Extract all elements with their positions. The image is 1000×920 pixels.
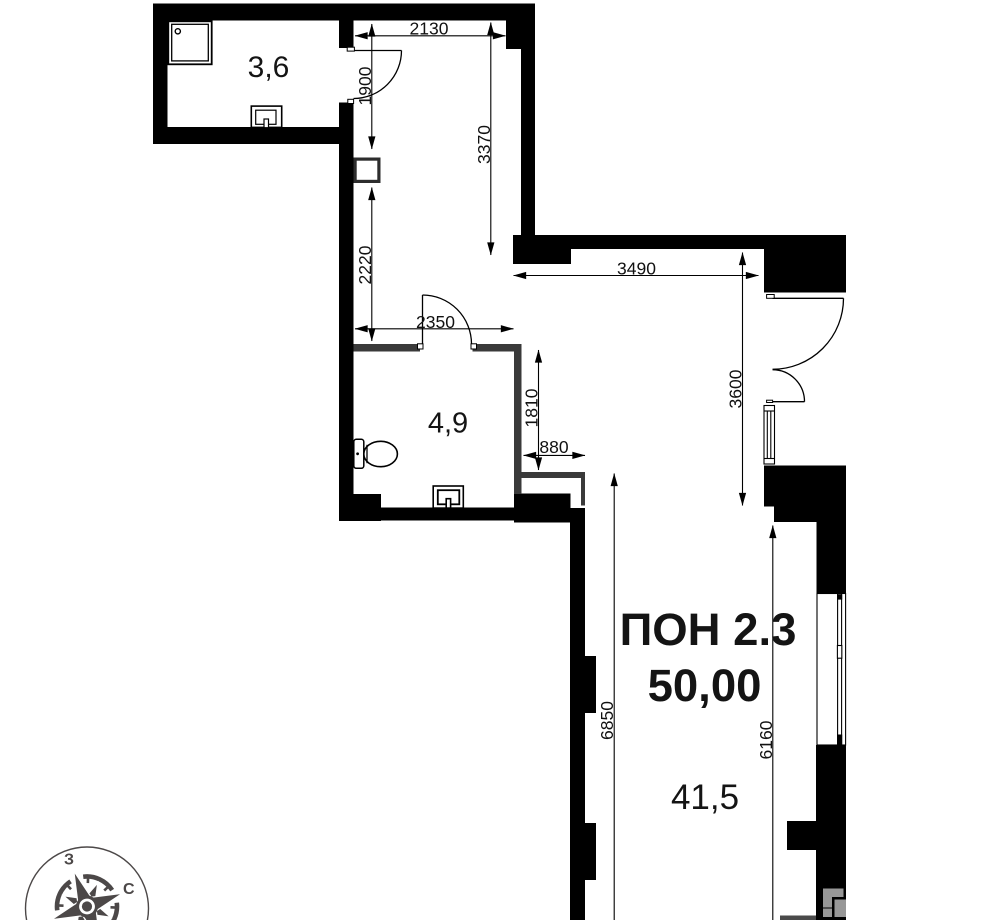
svg-text:3600: 3600 [726, 369, 746, 408]
svg-text:2220: 2220 [355, 245, 375, 284]
svg-text:6160: 6160 [756, 720, 776, 759]
svg-text:1810: 1810 [522, 388, 542, 427]
svg-text:З: З [64, 852, 74, 869]
svg-text:880: 880 [539, 437, 568, 457]
svg-text:1900: 1900 [355, 66, 375, 105]
svg-text:2350: 2350 [416, 312, 455, 332]
svg-text:3370: 3370 [474, 125, 494, 164]
svg-text:2130: 2130 [410, 19, 449, 39]
svg-text:6850: 6850 [597, 701, 617, 740]
svg-text:4,9: 4,9 [428, 408, 468, 440]
svg-text:41,5: 41,5 [671, 778, 739, 817]
svg-text:ПОН 2.3: ПОН 2.3 [620, 604, 797, 655]
svg-text:3,6: 3,6 [248, 51, 290, 84]
svg-text:50,00: 50,00 [648, 660, 762, 711]
svg-text:3490: 3490 [617, 259, 656, 279]
svg-text:С: С [123, 881, 135, 898]
